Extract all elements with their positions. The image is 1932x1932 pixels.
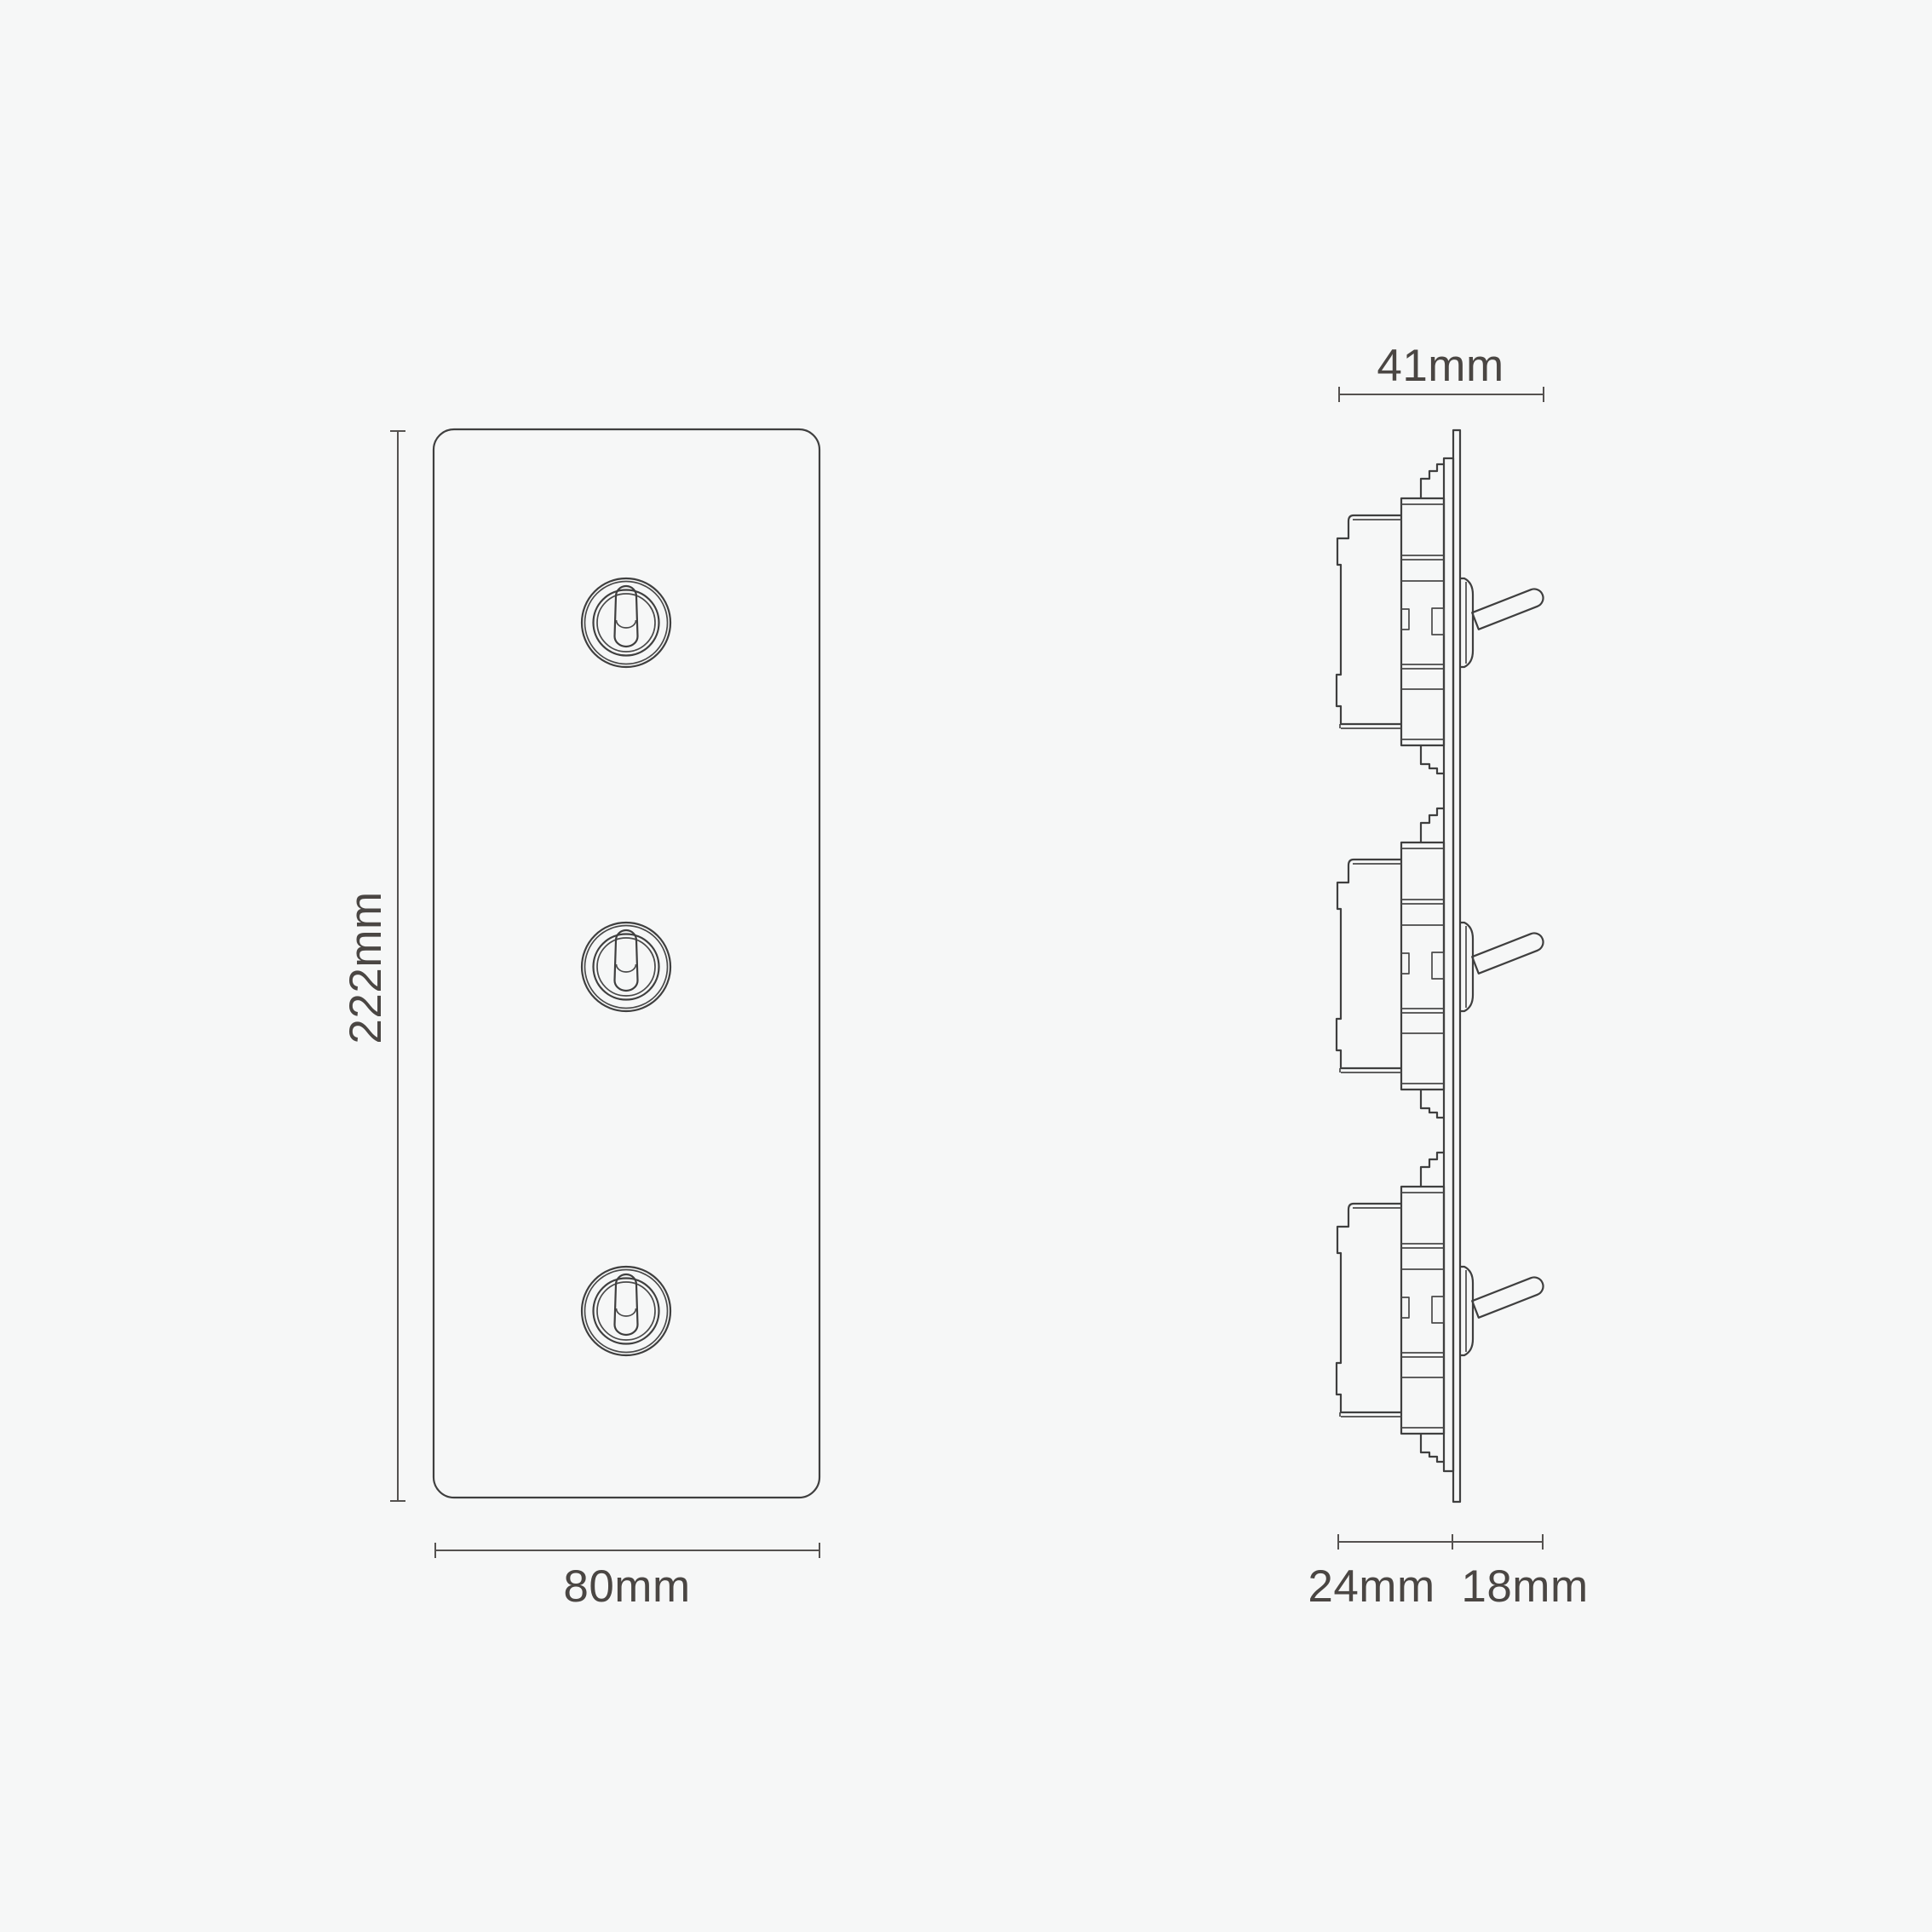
diagram-svg: 222mm 80mm 41mm 24mm 18mm <box>0 0 1932 1932</box>
toggle-switch-3 <box>582 1267 670 1355</box>
height-dimension: 222mm <box>341 431 405 1501</box>
dimension-diagram: 222mm 80mm 41mm 24mm 18mm <box>0 0 1932 1932</box>
side-width-dimension: 41mm <box>1339 341 1544 402</box>
switch-module-1 <box>1337 464 1544 773</box>
switch-module-3 <box>1337 1153 1544 1462</box>
side-depth-dimension: 24mm 18mm <box>1308 1534 1588 1612</box>
switch-module-2 <box>1337 808 1544 1118</box>
height-dimension-line <box>390 431 405 1501</box>
front-view: 222mm 80mm <box>341 429 819 1612</box>
height-dimension-label: 222mm <box>341 891 391 1044</box>
side-width-dimension-label: 41mm <box>1377 341 1504 391</box>
side-depth-front-label: 18mm <box>1461 1561 1588 1612</box>
toggle-switch-1 <box>582 578 670 667</box>
faceplate-side <box>1453 430 1460 1502</box>
width-dimension: 80mm <box>435 1543 819 1612</box>
side-depth-back-label: 24mm <box>1308 1561 1435 1612</box>
side-depth-dimension-line <box>1338 1534 1543 1550</box>
toggle-switch-2 <box>582 923 670 1011</box>
mounting-frame-side <box>1444 458 1453 1471</box>
width-dimension-label: 80mm <box>563 1561 690 1612</box>
side-view: 41mm 24mm 18mm <box>1308 341 1588 1612</box>
width-dimension-line <box>435 1543 819 1558</box>
